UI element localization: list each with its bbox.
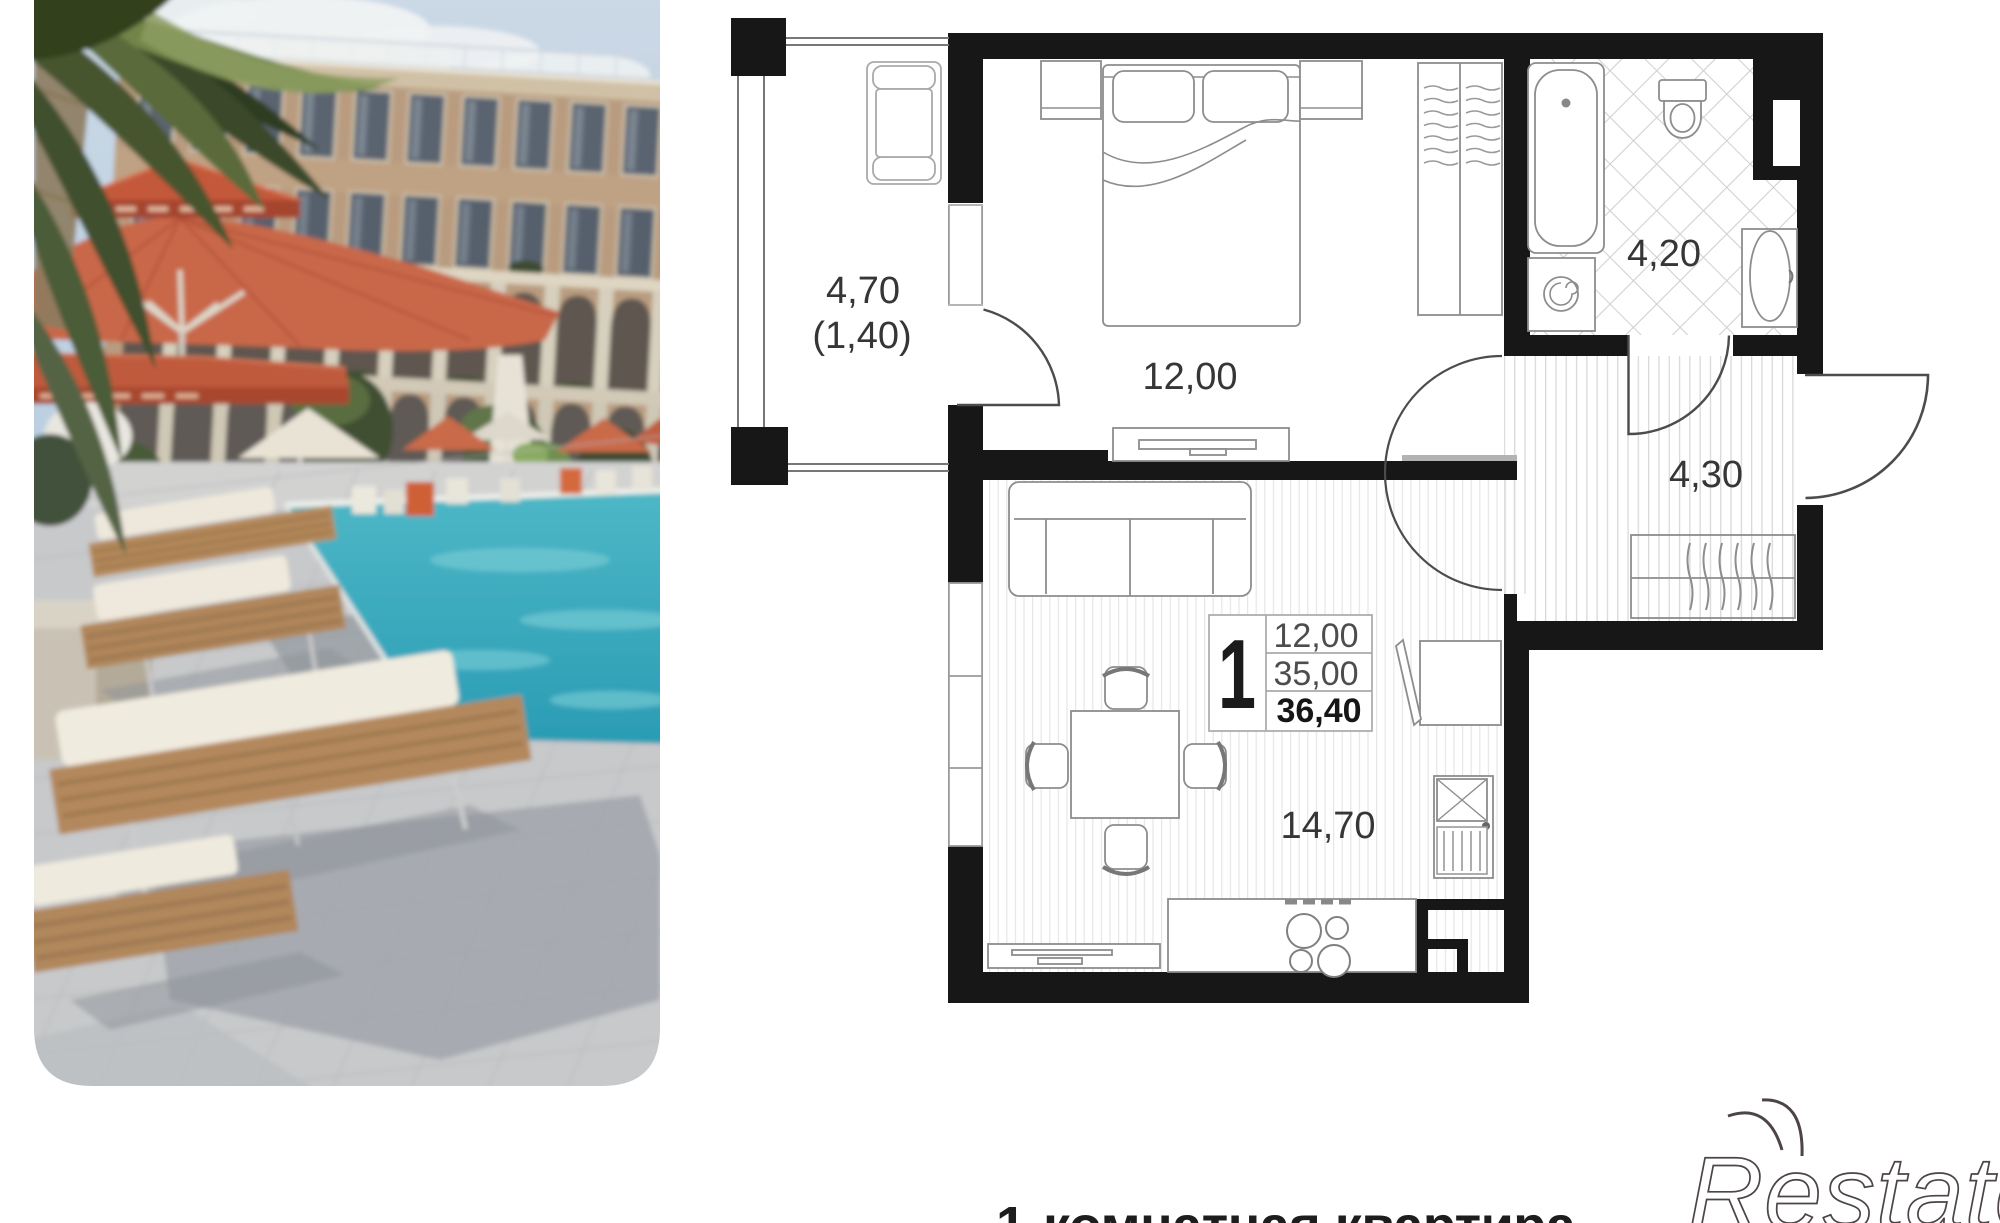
svg-text:4,30: 4,30 xyxy=(1669,454,1743,496)
svg-text:36,40: 36,40 xyxy=(1276,692,1361,730)
svg-text:4,20: 4,20 xyxy=(1627,233,1701,275)
svg-text:Restate: Restate xyxy=(1688,1136,2000,1223)
svg-text:1-комнатная квартира: 1-комнатная квартира xyxy=(996,1196,1577,1223)
svg-text:12,00: 12,00 xyxy=(1273,617,1358,655)
svg-text:12,00: 12,00 xyxy=(1142,356,1237,398)
svg-text:(1,40): (1,40) xyxy=(812,315,911,357)
svg-text:35,00: 35,00 xyxy=(1273,655,1358,693)
svg-text:1: 1 xyxy=(1218,619,1256,729)
svg-text:4,70: 4,70 xyxy=(826,270,900,312)
svg-text:14,70: 14,70 xyxy=(1280,805,1375,847)
